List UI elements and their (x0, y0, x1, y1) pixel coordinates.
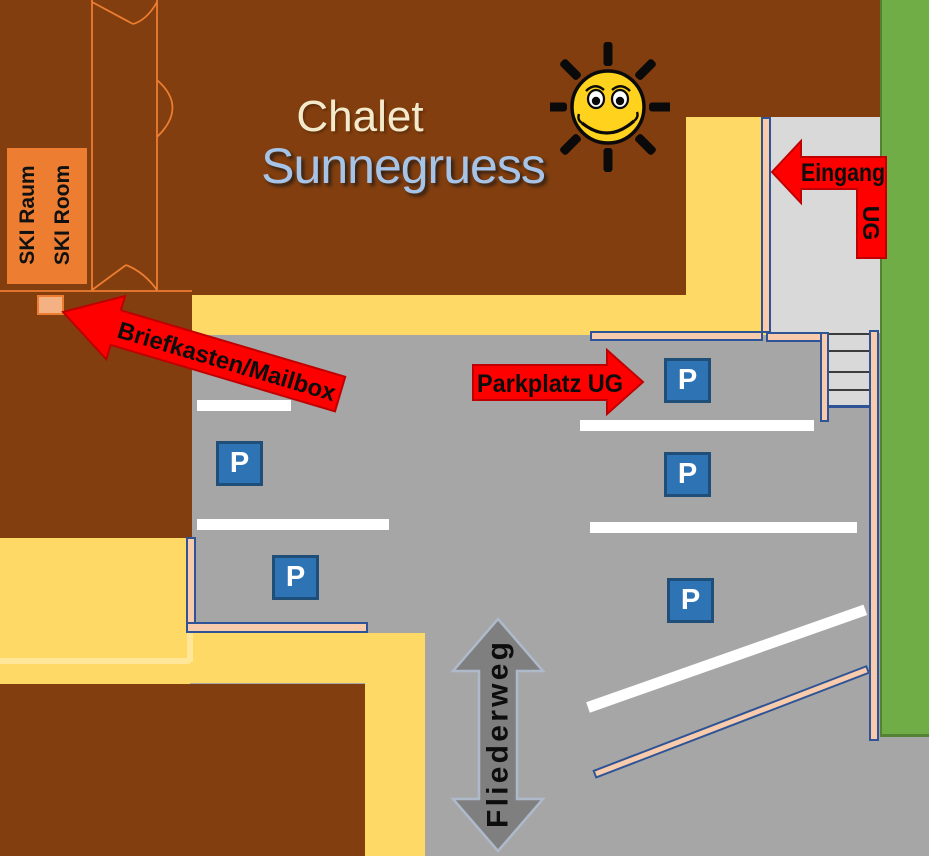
wall-stairs-top (766, 332, 822, 342)
path-column-right (686, 117, 766, 335)
building-bottom-left (0, 684, 365, 856)
mailbox-arrow: Briefkasten/Mailbox (30, 250, 370, 440)
p-letter: P (230, 447, 249, 480)
wall-ramp-diagonal (592, 665, 870, 779)
stair-step (829, 350, 869, 352)
wall-right-long (869, 330, 879, 741)
entrance-arrow: Eingang UG (765, 135, 890, 265)
chalet-title-line2: Sunnegruess (228, 137, 578, 195)
site-map: SKI Raum SKI Room P P P P P Fliederweg (0, 0, 929, 856)
parking-p-sign: P (664, 358, 711, 403)
wall-left-vertical (186, 537, 196, 627)
wall-parking-top (590, 331, 763, 341)
p-letter: P (678, 458, 697, 491)
parking-p-sign: P (664, 452, 711, 497)
parking-label: Parkplatz UG (477, 370, 623, 398)
stair-step (829, 371, 869, 373)
stairs-area (827, 333, 869, 407)
path-edge-light-h (0, 658, 190, 664)
parking-line-diagonal (586, 605, 867, 713)
entrance-label: Eingang (801, 159, 885, 187)
parking-line (590, 522, 857, 533)
street-arrow: Fliederweg (446, 616, 550, 854)
p-letter: P (681, 584, 700, 617)
parking-arrow: Parkplatz UG (470, 345, 650, 420)
stair-step (829, 389, 869, 391)
parking-p-sign: P (272, 555, 319, 600)
path-edge-light-v (187, 628, 193, 662)
mailbox-label: Briefkasten/Mailbox (114, 317, 339, 407)
lawn-strip (880, 0, 929, 737)
parking-line (580, 420, 814, 431)
parking-p-sign: P (216, 441, 263, 486)
entrance-sublabel: UG (858, 206, 884, 241)
chalet-title-line1: Chalet (255, 92, 465, 142)
parking-p-sign: P (667, 578, 714, 623)
path-strip-bottom (365, 633, 425, 856)
street-name: Fliederweg (482, 642, 515, 828)
path-band-bottom (188, 633, 368, 683)
wall-stairs-left (820, 332, 829, 422)
p-letter: P (678, 364, 697, 397)
wall-left-horizontal (186, 622, 368, 633)
p-letter: P (286, 561, 305, 594)
parking-line (197, 519, 389, 530)
stair-bottom-edge (827, 405, 871, 408)
stair-step (829, 333, 869, 335)
